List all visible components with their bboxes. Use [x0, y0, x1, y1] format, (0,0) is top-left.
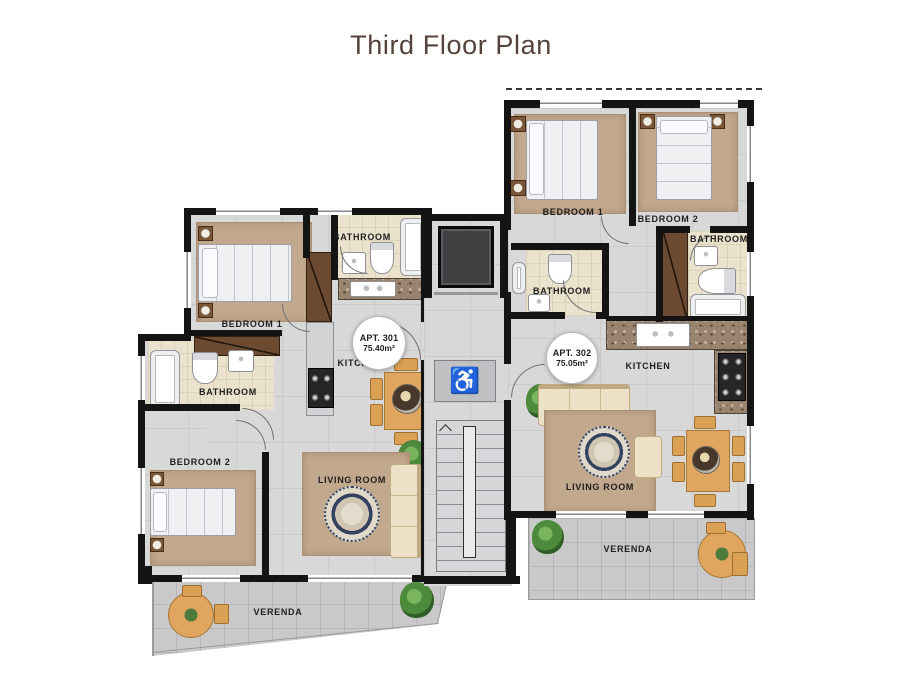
apartment-area: 75.40m² — [363, 343, 395, 353]
dining-chair — [732, 436, 745, 456]
window — [747, 252, 754, 296]
window — [700, 100, 738, 108]
wall — [504, 511, 754, 518]
dining-chair — [672, 436, 685, 456]
wall — [710, 226, 748, 233]
apartment-badge-302: APT. 302 75.05m² — [546, 332, 598, 384]
wheelchair-accessible-icon: ♿ — [449, 367, 480, 396]
window — [540, 100, 602, 108]
room-label-bathroom-right: BATHROOM — [690, 234, 748, 244]
round-rug — [578, 426, 630, 478]
dining-chair — [694, 494, 716, 507]
nightstand — [640, 114, 655, 129]
room-label-bathroom-top: BATHROOM — [333, 232, 391, 242]
apartment-badge-301: APT. 301 75.40m² — [352, 316, 406, 370]
shower-tray — [512, 262, 526, 294]
room-label-bathroom-left: BATHROOM — [533, 286, 591, 296]
room-label-bedroom2: BEDROOM 2 — [638, 214, 699, 224]
apartment-302: BEDROOM 1 BEDROOM 2 BATHROOM BATHROOM KI… — [0, 0, 902, 698]
wall — [504, 292, 511, 364]
room-label-bedroom2: BEDROOM 2 — [170, 457, 231, 467]
wall — [602, 243, 609, 319]
room-label-bedroom1: BEDROOM 1 — [543, 207, 604, 217]
bed-pillow — [660, 120, 708, 134]
room-label-kitchen: KITCHEN — [626, 361, 671, 371]
wall — [656, 226, 690, 233]
wall — [606, 316, 748, 321]
veranda-chair — [706, 522, 726, 534]
room-label-living: LIVING ROOM — [566, 482, 634, 492]
room-label-bedroom1: BEDROOM 1 — [222, 319, 283, 329]
accessible-area: ♿ — [434, 360, 496, 402]
armchair — [634, 436, 662, 478]
room-label-bathroom-side: BATHROOM — [199, 387, 257, 397]
potted-plant — [532, 520, 564, 554]
nightstand — [710, 114, 725, 129]
bed-pillow — [529, 123, 544, 195]
overhang-dashed-line — [506, 88, 762, 90]
window — [747, 426, 754, 484]
wardrobe — [662, 230, 688, 320]
toilet — [698, 268, 736, 294]
wall — [629, 108, 636, 226]
dining-chair — [732, 462, 745, 482]
wall — [504, 400, 511, 520]
dining-chair — [694, 416, 716, 429]
veranda-chair — [732, 552, 748, 576]
apartment-number: APT. 301 — [360, 333, 399, 343]
kitchen-sink — [636, 323, 690, 347]
wall — [511, 243, 607, 250]
room-label-veranda: VERENDA — [254, 607, 303, 617]
room-label-veranda: VERENDA — [604, 544, 653, 554]
wall — [656, 226, 663, 322]
stove — [718, 353, 746, 401]
apartment-area: 75.05m² — [556, 358, 588, 368]
window — [556, 511, 626, 518]
bathroom-sink — [528, 294, 550, 312]
nightstand — [510, 116, 526, 132]
room-label-living: LIVING ROOM — [318, 475, 386, 485]
wall — [511, 312, 565, 319]
window — [747, 126, 754, 182]
nightstand — [510, 180, 526, 196]
dining-chair — [672, 462, 685, 482]
wall — [504, 100, 511, 230]
apartment-number: APT. 302 — [553, 348, 592, 358]
table-centerpiece — [692, 446, 720, 474]
window — [648, 511, 704, 518]
floor-plan-canvas: Third Floor Plan — [0, 0, 902, 698]
